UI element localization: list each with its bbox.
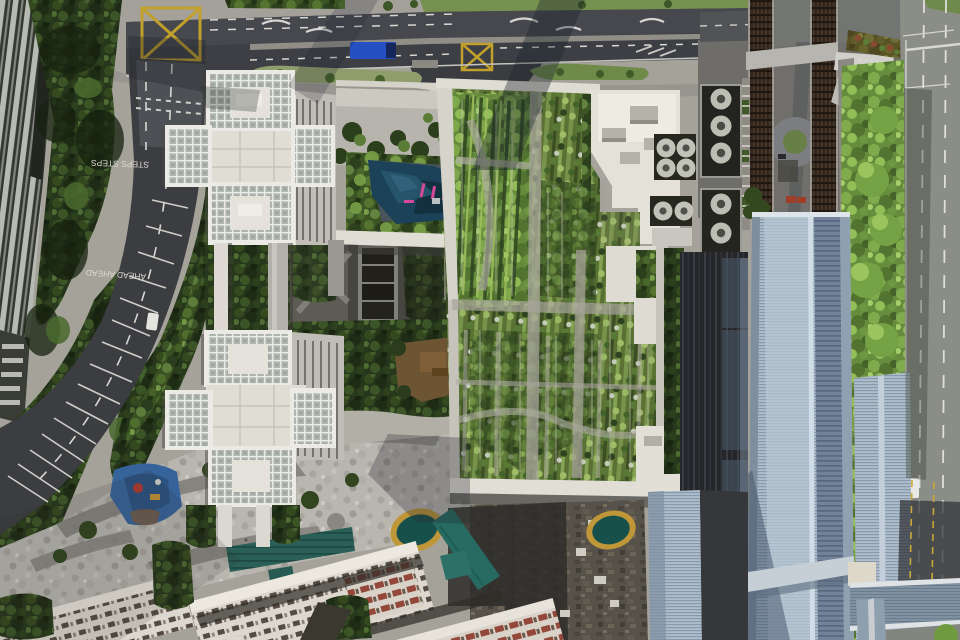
svg-text:STEPS STEPS: STEPS STEPS: [90, 158, 149, 170]
